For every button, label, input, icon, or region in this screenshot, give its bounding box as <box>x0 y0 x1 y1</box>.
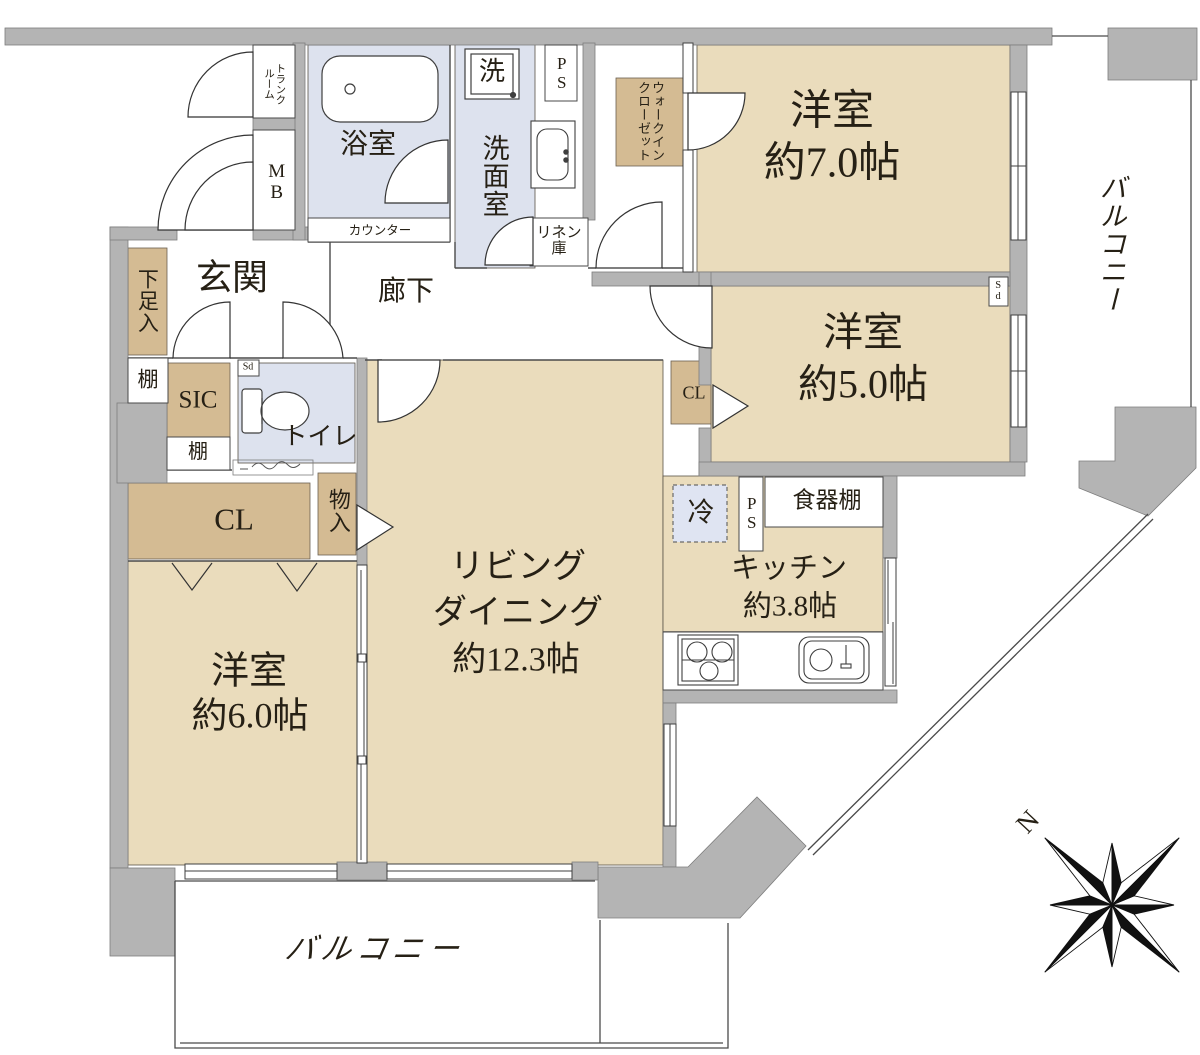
washer-label: 洗 <box>479 58 505 86</box>
bedroom7-size: 約7.0帖 <box>764 141 901 186</box>
walk-in-closet-label: ウォークインクローゼット <box>636 75 664 167</box>
shelf-lower-label: 棚 <box>188 442 208 464</box>
storage-compartment-label: 物入 <box>326 480 350 542</box>
shelf-upper-label: 棚 <box>138 369 159 392</box>
kitchen-name: キッチン <box>731 553 847 584</box>
sic-label: SIC <box>179 387 218 414</box>
bedroom5-size: 約5.0帖 <box>798 362 928 405</box>
detector-toilet-label: Sd <box>243 363 254 374</box>
vanity-sink <box>531 121 575 188</box>
floor-plan-drawing <box>0 0 1200 1055</box>
pipe-space-top-label: PS <box>552 50 570 96</box>
hallway-name: 廊下 <box>378 277 434 307</box>
bath-name: 浴室 <box>340 130 396 160</box>
pipe-space-kitchen-label: PS <box>742 490 760 536</box>
entrance-name: 玄関 <box>196 259 268 298</box>
balcony-bottom-name: バルコニー <box>282 934 467 966</box>
closet-bedroom6-label: CL <box>214 502 254 535</box>
living-name-line2: ダイニング <box>433 596 603 633</box>
meter-box-label: MB <box>266 157 287 207</box>
kitchen-sink <box>799 637 869 683</box>
bathtub <box>322 56 438 122</box>
stove <box>678 635 738 685</box>
bedroom7-name: 洋室 <box>790 89 874 134</box>
shoe-cabinet-label: 下足入 <box>136 257 159 345</box>
detector-bedroom5-label: Sd <box>992 277 1003 305</box>
refrigerator-label: 冷 <box>688 498 715 527</box>
washroom-name: 洗面室 <box>478 126 507 226</box>
linen-cabinet-label: リネン庫 <box>534 225 584 257</box>
counter-label: カウンター <box>349 224 412 238</box>
closet-bedroom5-label: CL <box>682 383 705 402</box>
bedroom6-name: 洋室 <box>211 651 287 692</box>
bedroom5-name: 洋室 <box>823 310 903 353</box>
toilet-name: トイレ <box>282 424 357 451</box>
floor-plan: 洋室 約7.0帖 洋室 約5.0帖 洋室 約6.0帖 リビング ダイニング 約1… <box>0 0 1200 1055</box>
cupboard-label: 食器棚 <box>793 489 862 514</box>
trunk-room-label: トランクルーム <box>263 59 286 109</box>
bedroom6-size: 約6.0帖 <box>191 697 308 736</box>
kitchen-size: 約3.8帖 <box>743 591 837 622</box>
balcony-right-name: バルコニー <box>1095 161 1124 326</box>
compass-rose <box>1045 838 1179 972</box>
living-name-line1: リビング <box>450 550 586 587</box>
living-size: 約12.3帖 <box>452 643 580 680</box>
